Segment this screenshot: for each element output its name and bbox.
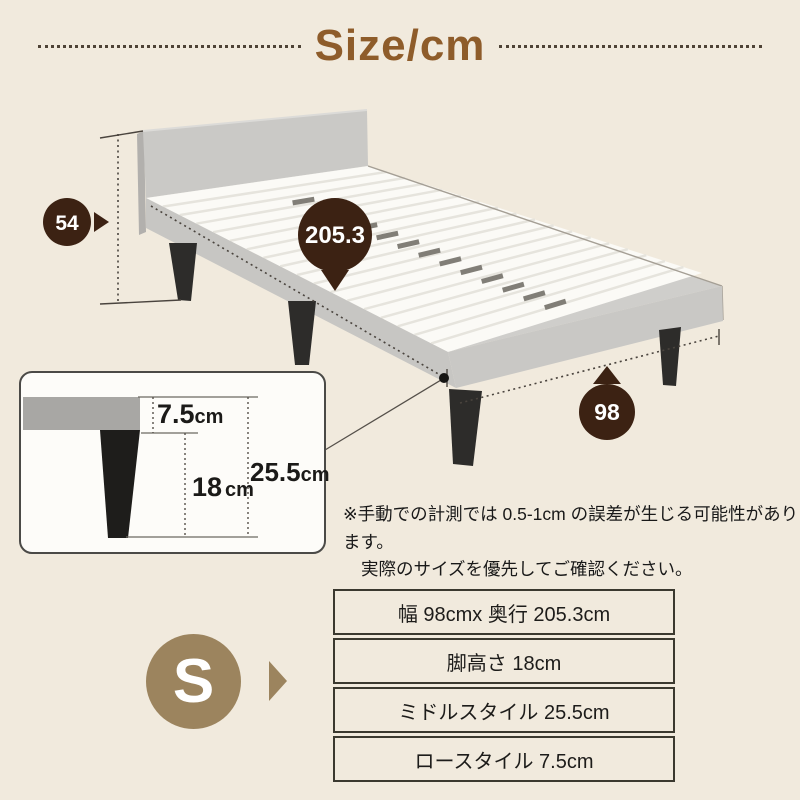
bed-leg-right <box>659 327 681 386</box>
spec-row-dimensions: 幅 98cmx 奥行 205.3cm <box>333 589 675 635</box>
spec-row-middle-style: ミドルスタイル 25.5cm <box>333 687 675 733</box>
size-badge: S <box>146 634 241 729</box>
spec-row-low-style: ロースタイル 7.5cm <box>333 736 675 782</box>
width-dim-value: 98 <box>594 399 620 425</box>
bed-diagram: 54 205.3 98 7.5cm 18cm 25.5 <box>0 0 800 570</box>
badge-arrow-right-icon <box>269 661 287 701</box>
bed-leg-corner <box>449 389 482 466</box>
height-dim-value: 54 <box>55 212 79 235</box>
arrow-right-icon <box>94 212 109 232</box>
leg-detail-inset: 7.5cm 18cm 25.5cm <box>20 372 330 553</box>
height-dim-tick-bottom <box>100 300 181 304</box>
inset-connector-line <box>325 380 441 450</box>
arrow-up-icon <box>593 366 621 384</box>
height-dim-tick-top <box>100 131 143 138</box>
length-dim-value: 205.3 <box>305 222 365 249</box>
inset-connector-dot <box>439 373 449 383</box>
bed-leg-head <box>169 243 197 301</box>
note-line-1: ※手動での計測では 0.5-1cm の誤差が生じる可能性があります。 <box>343 501 800 556</box>
spec-table: 幅 98cmx 奥行 205.3cm 脚高さ 18cm ミドルスタイル 25.5… <box>333 589 675 785</box>
inset-frame-bar <box>23 397 140 430</box>
bed-leg-middle <box>288 301 316 365</box>
measurement-note: ※手動での計測では 0.5-1cm の誤差が生じる可能性があります。 実際のサイ… <box>343 501 800 584</box>
size-infographic-page: Size/cm 54 <box>0 0 800 800</box>
spec-row-leg-height: 脚高さ 18cm <box>333 638 675 684</box>
note-line-2: 実際のサイズを優先してご確認ください。 <box>343 556 800 584</box>
